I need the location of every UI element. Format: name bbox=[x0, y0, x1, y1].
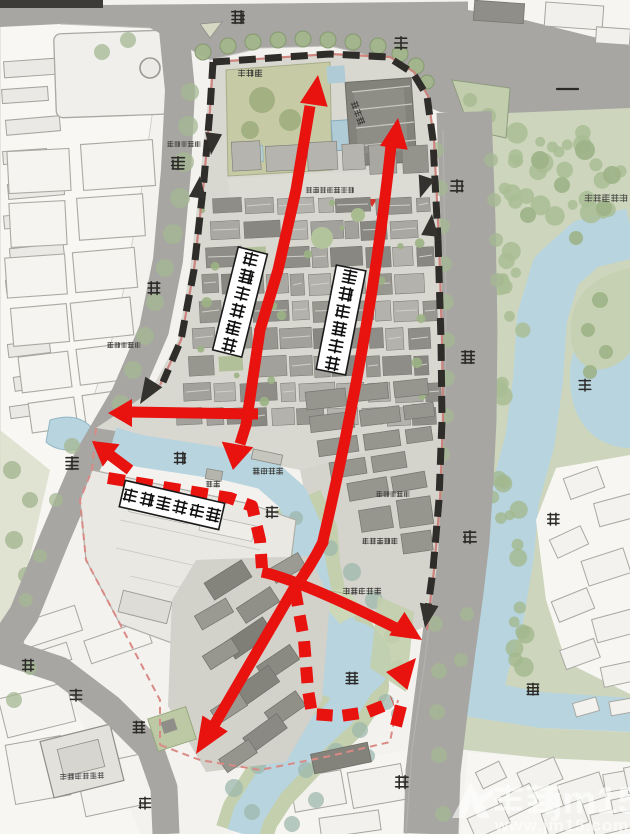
svg-text:www.jm15.com: www.jm15.com bbox=[494, 816, 629, 834]
